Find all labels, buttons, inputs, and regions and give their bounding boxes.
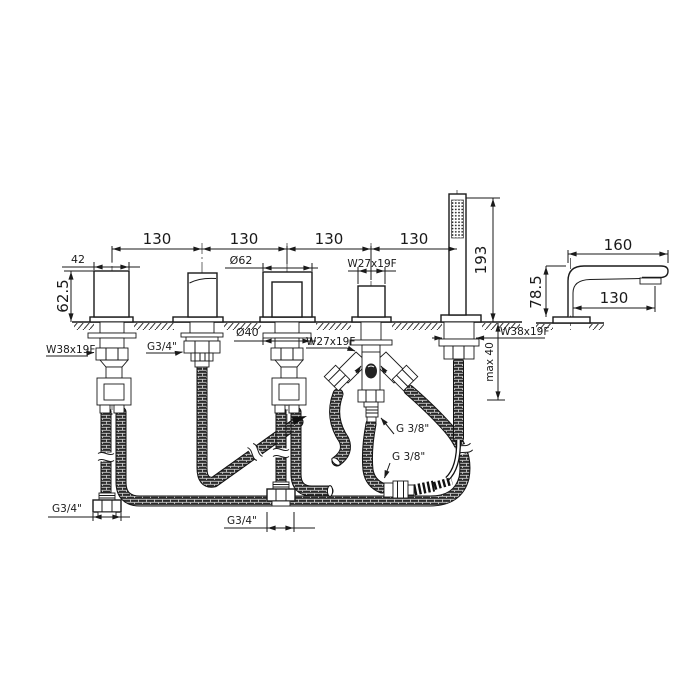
svg-text:160: 160 xyxy=(604,236,633,254)
svg-text:G3/4": G3/4" xyxy=(147,341,177,353)
svg-text:193: 193 xyxy=(472,246,490,275)
dim-spout-height: 78.5 xyxy=(527,266,566,317)
diverter-base xyxy=(352,317,391,322)
svg-text:max 40: max 40 xyxy=(484,342,496,382)
dim-handshower-height: 193 xyxy=(466,198,500,322)
bath-mixer-diagram: 130 130 130 130 42 62.5 Ø62 W27x19F 193 … xyxy=(0,0,700,700)
label-hose-coupling-thread: G 3/8" xyxy=(385,451,426,478)
svg-text:W27x19F: W27x19F xyxy=(347,258,396,270)
dim-spacing-3: 130 xyxy=(315,230,344,248)
handle-right xyxy=(260,272,315,322)
label-spout-thread: G3/4" xyxy=(146,341,183,353)
svg-text:Ø40: Ø40 xyxy=(236,326,259,339)
dim-sleeve-diameter: Ø62 xyxy=(225,254,318,271)
svg-text:42: 42 xyxy=(71,253,85,266)
handle-right-base xyxy=(260,317,315,322)
svg-text:78.5: 78.5 xyxy=(527,275,545,308)
svg-text:W27x19F: W27x19F xyxy=(306,336,355,348)
dim-supply-center: G3/4" xyxy=(224,512,315,532)
handshower-mount xyxy=(439,322,479,359)
handle-left xyxy=(90,271,133,322)
handle-right-body xyxy=(272,282,302,317)
dim-handle-height: 62.5 xyxy=(54,271,94,322)
supply-fitting-left xyxy=(93,493,121,517)
diverter-body xyxy=(358,286,385,317)
side-spout-base xyxy=(553,317,590,323)
dim-spout-length: 160 xyxy=(568,236,668,263)
label-valve-thread: W38x19F xyxy=(46,344,95,356)
dim-spacing-2: 130 xyxy=(230,230,259,248)
spout-front xyxy=(173,273,223,322)
svg-text:62.5: 62.5 xyxy=(54,279,72,312)
handshower-hose-coupling xyxy=(384,440,459,498)
svg-text:G3/4": G3/4" xyxy=(227,515,257,527)
svg-text:G3/4": G3/4" xyxy=(52,503,82,515)
handle-left-body xyxy=(94,271,129,317)
label-diverter-thread-bottom: W27x19F xyxy=(306,336,355,351)
svg-text:Ø62: Ø62 xyxy=(230,254,253,267)
svg-text:G 3/8": G 3/8" xyxy=(396,423,429,435)
svg-text:W38x19F: W38x19F xyxy=(46,344,95,356)
diverter-knob xyxy=(352,286,391,322)
svg-text:130: 130 xyxy=(600,289,629,307)
svg-text:G 3/8": G 3/8" xyxy=(392,451,425,463)
handle-left-mount xyxy=(88,322,136,413)
dim-spacing-4: 130 xyxy=(400,230,429,248)
coupling-nut xyxy=(384,483,393,497)
dim-diverter-thread-top: W27x19F xyxy=(347,258,396,284)
technical-drawing-page: 130 130 130 130 42 62.5 Ø62 W27x19F 193 … xyxy=(0,0,700,700)
spray-face xyxy=(452,200,464,238)
spout-body xyxy=(188,273,217,317)
spout-mount xyxy=(181,322,223,367)
handle-left-base xyxy=(90,317,133,322)
dim-handle-width: 42 xyxy=(62,253,140,270)
label-diverter-outlet-thread: G 3/8" xyxy=(381,418,429,435)
side-spout-outlet xyxy=(640,278,661,284)
handshower-holder xyxy=(441,315,481,322)
spout-base xyxy=(173,317,223,322)
handle-right-mount xyxy=(263,322,311,413)
dim-spacing-1: 130 xyxy=(143,230,172,248)
